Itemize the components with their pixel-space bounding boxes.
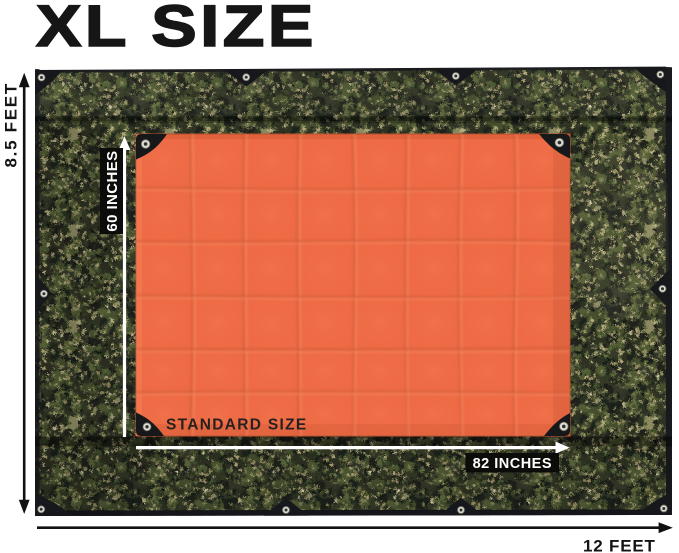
svg-text:STANDARD SIZE: STANDARD SIZE bbox=[166, 417, 307, 434]
svg-text:8.5 FEET: 8.5 FEET bbox=[1, 82, 20, 167]
svg-text:XL SIZE: XL SIZE bbox=[36, 0, 317, 59]
svg-text:82 INCHES: 82 INCHES bbox=[473, 456, 552, 472]
svg-text:60 INCHES: 60 INCHES bbox=[104, 150, 121, 231]
svg-text:12 FEET: 12 FEET bbox=[583, 537, 656, 553]
